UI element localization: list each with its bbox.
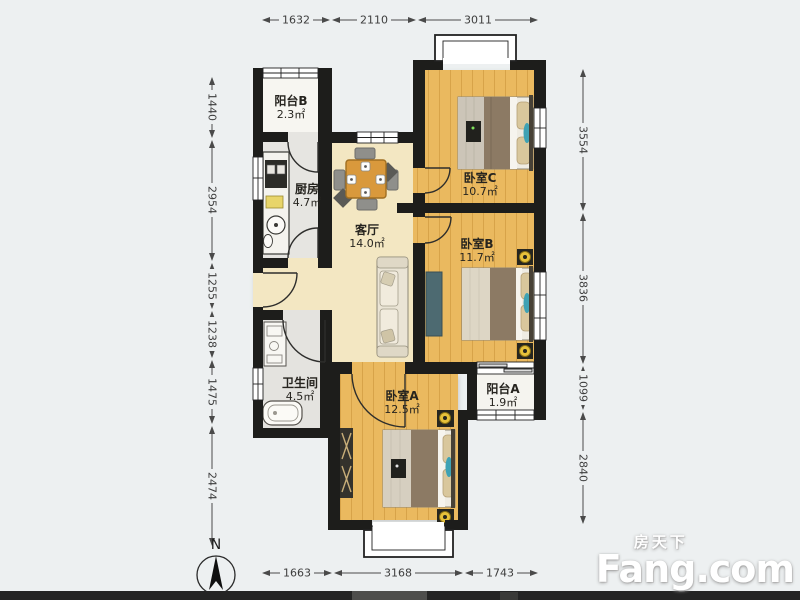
bottom-strip [0, 591, 800, 600]
headboard-icon [529, 95, 533, 171]
floor-plan-page: 1632 2110 3011 1663 3168 1743 1440 2954 … [0, 0, 800, 600]
dim-top-1: 1632 [279, 14, 313, 27]
room-label-bedroom-c: 卧室C10.7㎡ [462, 171, 498, 199]
watermark-logo: 房天下 Fang.com [596, 535, 794, 588]
headboard-icon [451, 429, 455, 508]
dim-left-1: 1440 [206, 90, 219, 124]
floor-plan-canvas [0, 0, 800, 600]
wardrobe-bedroom-b [426, 272, 442, 336]
window-bedroom-b-right [534, 272, 546, 340]
dim-right-1: 3554 [577, 123, 590, 157]
chair-icon [334, 170, 345, 190]
dim-left-2: 2954 [206, 183, 219, 217]
room-label-bathroom: 卫生间4.5㎡ [282, 376, 318, 404]
dim-right-3: 1099 [577, 371, 590, 405]
dim-right-4: 2840 [577, 451, 590, 485]
room-label-balcony-b: 阳台B2.3㎡ [274, 94, 307, 122]
dim-left-4: 1238 [206, 317, 219, 351]
bay-window-bedroom-a [364, 522, 453, 557]
dim-right-2: 3836 [577, 271, 590, 305]
dim-left-5: 1475 [206, 375, 219, 409]
dim-bottom-3: 1743 [483, 567, 517, 580]
kitchen-counter [263, 152, 289, 254]
tv-icon [466, 121, 481, 142]
sofa [377, 257, 408, 357]
north-arrow-icon [197, 556, 235, 594]
window-kitchen-left [253, 157, 263, 200]
window-bathroom-left [253, 368, 263, 400]
dim-bottom-1: 1663 [280, 567, 314, 580]
window-living-top [357, 132, 398, 143]
room-label-kitchen: 厨房4.7㎡ [293, 182, 322, 210]
bed-bedroom-c [458, 95, 533, 171]
bay-window-bedroom-c [435, 35, 516, 64]
room-label-balcony-a: 阳台A1.9㎡ [486, 382, 519, 410]
brand-en: Fang.com [596, 550, 794, 588]
window-bedroom-c-right [534, 108, 546, 148]
cutting-board-icon [266, 196, 283, 208]
dim-left-3: 1255 [206, 269, 219, 303]
nightstand-icon [437, 410, 454, 427]
room-label-bedroom-b: 卧室B11.7㎡ [459, 237, 495, 265]
dim-bottom-2: 3168 [381, 567, 415, 580]
room-label-bedroom-a: 卧室A12.5㎡ [384, 389, 420, 417]
dim-top-2: 2110 [357, 14, 391, 27]
chair-icon [357, 199, 377, 210]
wardrobe-bedroom-a [340, 428, 353, 498]
tv-icon [391, 459, 406, 478]
dim-top-3: 3011 [461, 14, 495, 27]
room-label-living-room: 客厅14.0㎡ [349, 223, 385, 251]
chair-icon [355, 148, 375, 159]
window-balcony-a-bottom [477, 410, 534, 420]
headboard-icon [529, 266, 533, 342]
nightstand-icon [517, 343, 533, 359]
window-balcony-b-top [263, 68, 318, 78]
nightstand-icon [517, 249, 533, 265]
dim-left-6: 2474 [206, 469, 219, 503]
compass-n-label: N [211, 537, 221, 553]
sliding-door-balcony-a [477, 362, 534, 374]
